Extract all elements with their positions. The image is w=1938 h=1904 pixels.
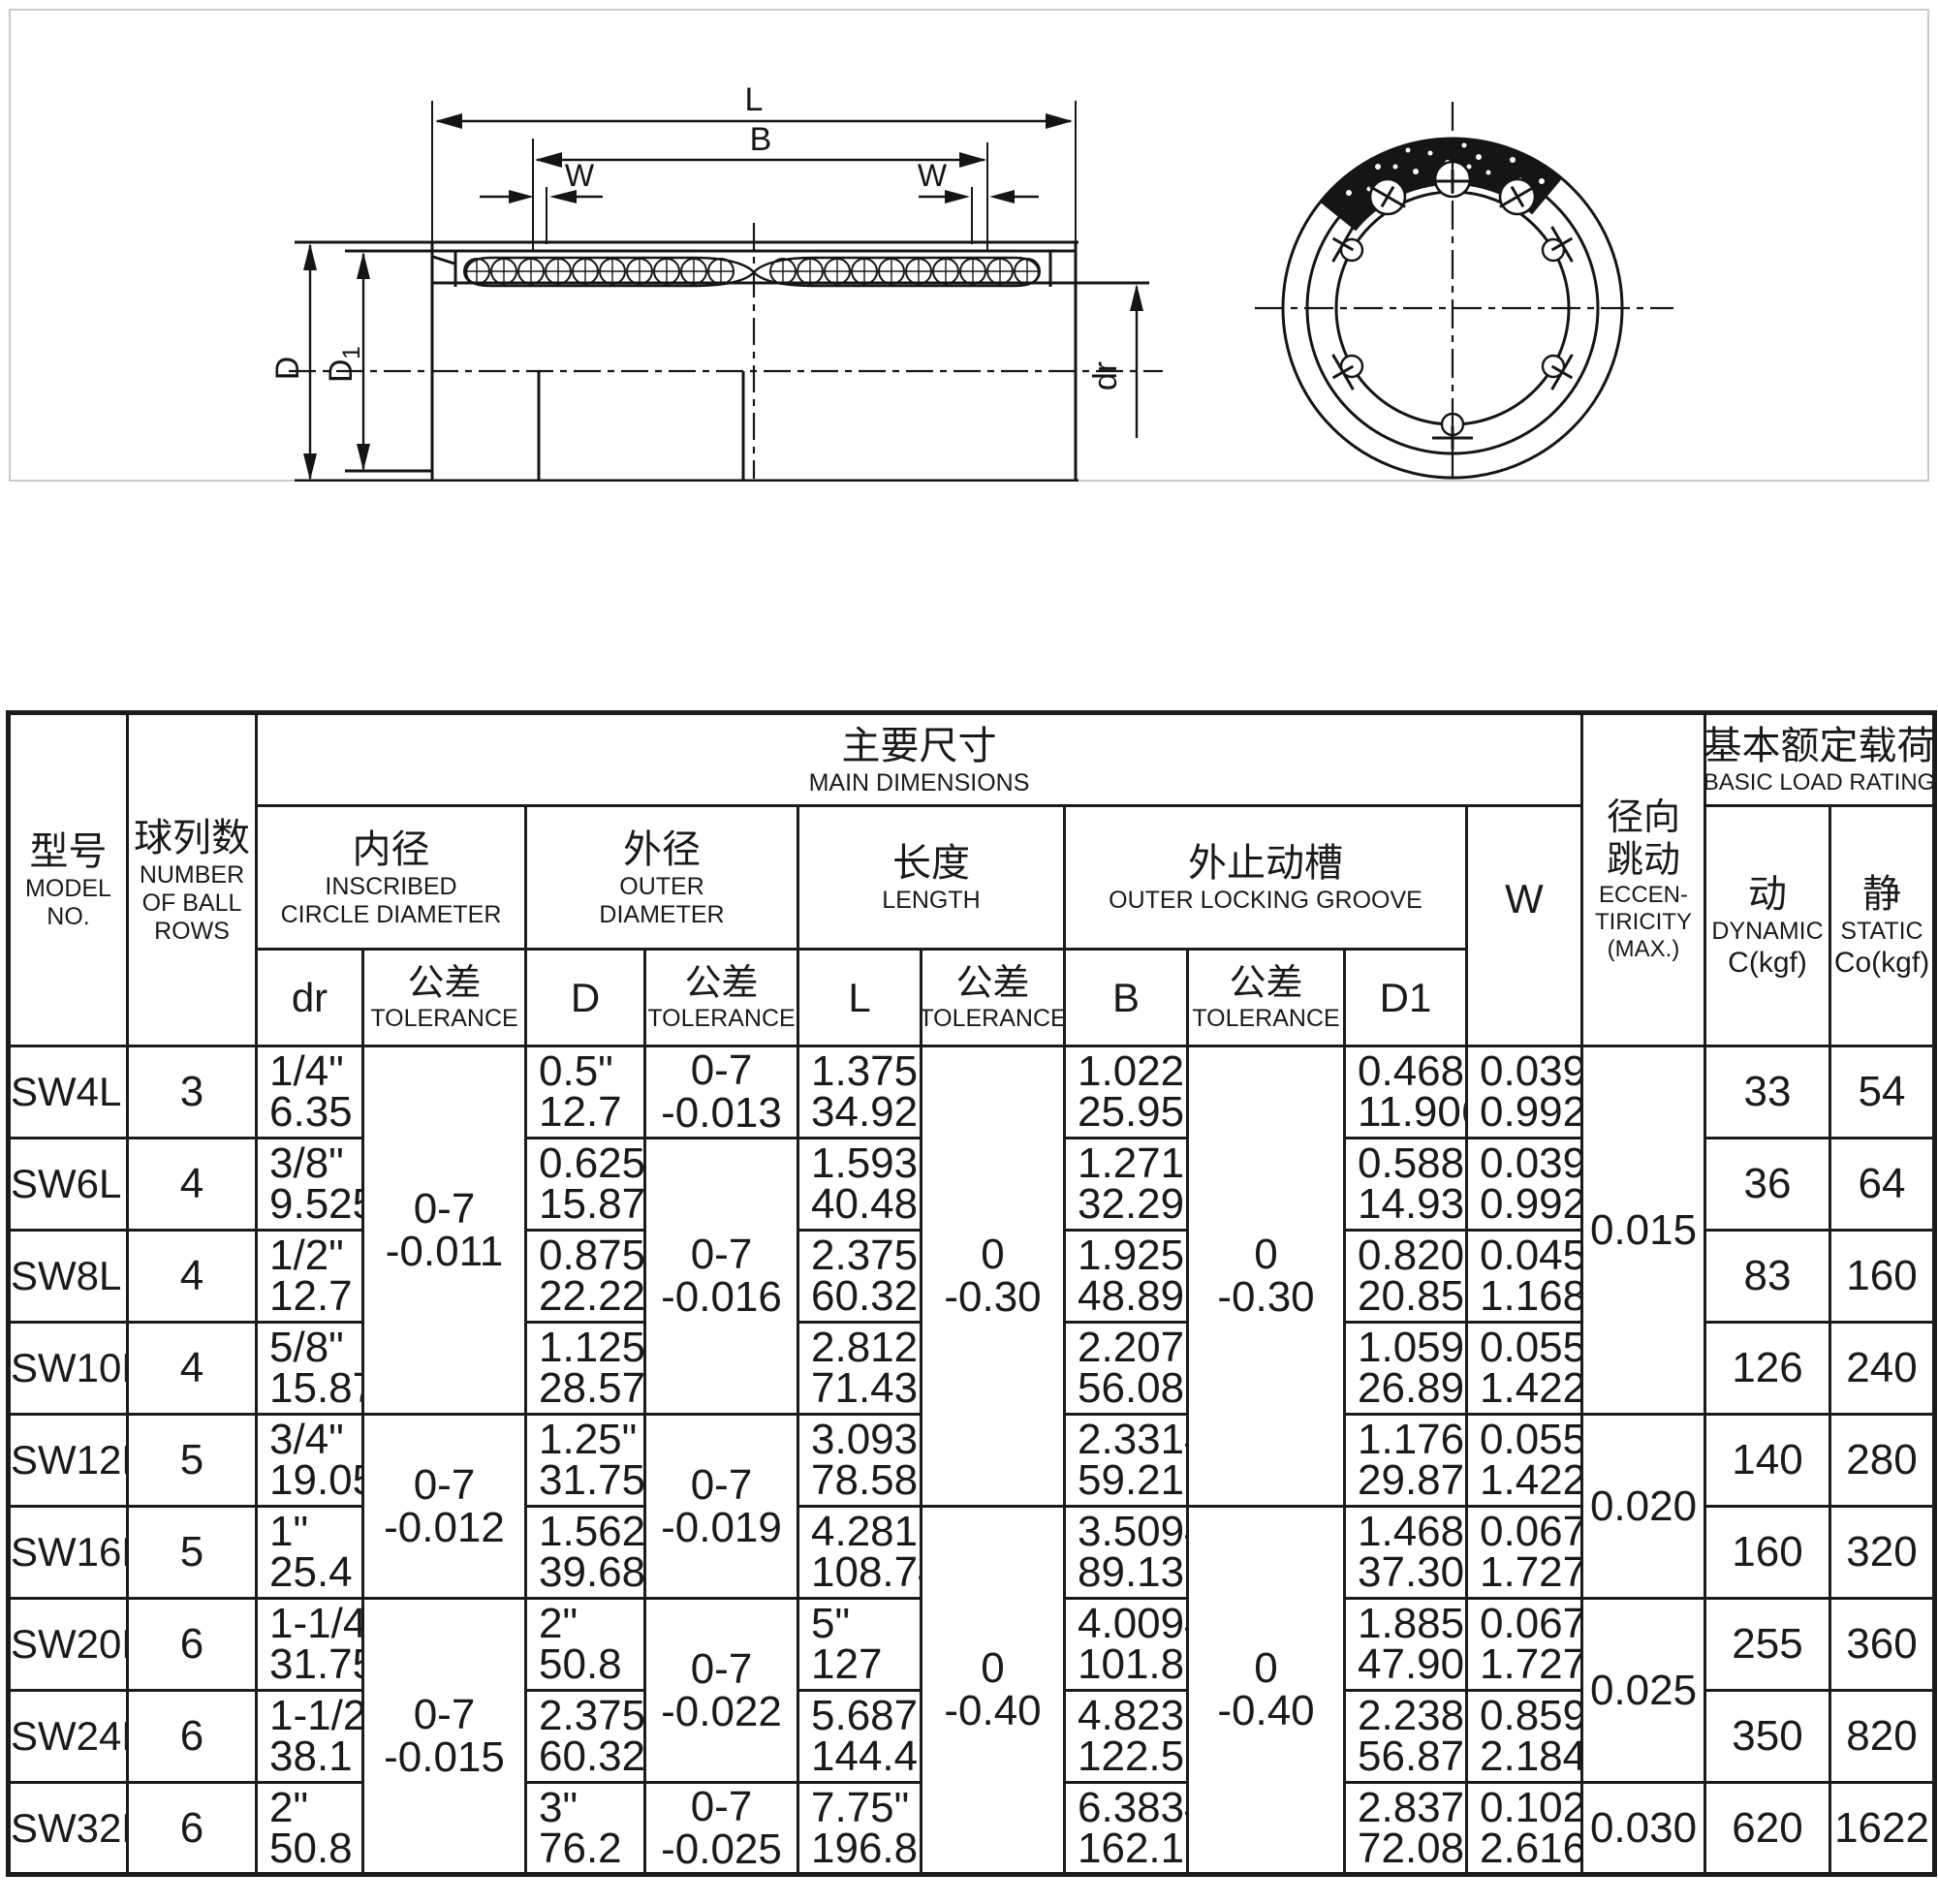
- cn-label: 长度: [892, 840, 970, 887]
- dim-label-D: D: [269, 357, 306, 381]
- l-cell: 4.2813"108.744: [798, 1507, 922, 1599]
- d-cell: 0.625"15.875: [526, 1139, 645, 1231]
- cn-label: 型号: [30, 828, 108, 875]
- header-outer-diameter: 外径 OUTER DIAMETER: [526, 806, 798, 950]
- en-label: MAIN DIMENSIONS: [809, 769, 1030, 797]
- w-cell: 0.039"0.992: [1467, 1139, 1582, 1231]
- dynamic-load-cell: 140: [1705, 1415, 1830, 1507]
- d1-cell: 1.059"26.899: [1345, 1323, 1467, 1415]
- w-symbol: W: [1505, 878, 1544, 921]
- header-d1: D1: [1345, 950, 1467, 1046]
- b-symbol: B: [1112, 977, 1140, 1019]
- static-load-cell: 240: [1830, 1323, 1935, 1415]
- en-label: MODEL: [25, 875, 111, 903]
- d-cell: 0.875"22.225: [526, 1231, 645, 1323]
- w-cell: 0.1029"2.616: [1467, 1783, 1582, 1875]
- ball-rows-cell: 4: [128, 1323, 257, 1415]
- d-tolerance-cell: 0-7-0.022: [645, 1599, 798, 1783]
- static-load-cell: 360: [1830, 1599, 1935, 1691]
- header-dr-tolerance: 公差 TOLERANCE: [363, 950, 526, 1046]
- en-label: TOLERANCE: [370, 1005, 517, 1033]
- l-tolerance-cell: 0-0.40: [922, 1507, 1065, 1875]
- b-cell: 1.925"48.895: [1065, 1231, 1188, 1323]
- en-label: STATIC: [1840, 918, 1922, 946]
- dynamic-load-cell: 36: [1705, 1139, 1830, 1231]
- d1-cell: 0.4687"11.906: [1345, 1046, 1467, 1139]
- header-locking-groove: 外止动槽 OUTER LOCKING GROOVE: [1065, 806, 1467, 950]
- l-cell: 5"127: [798, 1599, 922, 1691]
- dr-cell: 2"50.8: [257, 1783, 363, 1875]
- l-cell: 2.375"60.325: [798, 1231, 922, 1323]
- en-label: TIRICITY: [1595, 909, 1692, 936]
- header-model: 型号 MODEL NO.: [9, 713, 128, 1046]
- ball-rows-cell: 3: [128, 1046, 257, 1139]
- d-tolerance-cell: 0-7-0.013: [645, 1046, 798, 1139]
- header-l: L: [798, 950, 922, 1046]
- dr-cell: 5/8"15.875: [257, 1323, 363, 1415]
- d1-cell: 2.8379"72.085: [1345, 1783, 1467, 1875]
- cn-label: 公差: [955, 962, 1029, 1005]
- d-cell: 0.5"12.7: [526, 1046, 645, 1139]
- static-load-cell: 320: [1830, 1507, 1935, 1599]
- dim-label-L: L: [745, 81, 764, 118]
- cn-label: 动: [1748, 871, 1787, 918]
- cn-label: 球列数: [134, 815, 250, 861]
- w-cell: 0.0559"1.422: [1467, 1323, 1582, 1415]
- d1-cell: 0.588"14.935: [1345, 1139, 1467, 1231]
- cn-label: 主要尺寸: [842, 723, 997, 769]
- static-load-cell: 820: [1830, 1691, 1935, 1783]
- ball-rows-cell: 6: [128, 1599, 257, 1691]
- en-label: INSCRIBED: [325, 873, 456, 901]
- d-symbol: D: [571, 977, 600, 1019]
- l-cell: 5.6875"144.463: [798, 1691, 922, 1783]
- d1-cell: 1.4687"37.306: [1345, 1507, 1467, 1599]
- static-load-cell: 280: [1830, 1415, 1935, 1507]
- b-tolerance-cell: 0-0.40: [1188, 1507, 1345, 1875]
- l-cell: 1.5938"40.481: [798, 1139, 922, 1231]
- w-cell: 0.0459"1.168: [1467, 1231, 1582, 1323]
- ball-rows-cell: 4: [128, 1231, 257, 1323]
- dynamic-load-cell: 83: [1705, 1231, 1830, 1323]
- dim-label-dr: dr: [1087, 361, 1124, 390]
- table-row: SW4L 3 1/4"6.35 0-7-0.011 0.5"12.7 0-7-0…: [9, 1046, 1935, 1139]
- b-cell: 4.0094"101.839: [1065, 1599, 1188, 1691]
- d1-cell: 1.8859"47.904: [1345, 1599, 1467, 1691]
- static-load-cell: 54: [1830, 1046, 1935, 1139]
- dim-label-W-right: W: [918, 158, 948, 193]
- cn-label: 内径: [353, 827, 430, 873]
- ball-rows-cell: 5: [128, 1507, 257, 1599]
- w-cell: 0.859"2.184: [1467, 1691, 1582, 1783]
- dynamic-load-cell: 33: [1705, 1046, 1830, 1139]
- header-dr: dr: [257, 950, 363, 1046]
- model-cell: SW10L: [9, 1323, 128, 1415]
- ball-rows-cell: 4: [128, 1139, 257, 1231]
- d-cell: 1.5625"39.688: [526, 1507, 645, 1599]
- datasheet-page: { "drawing": { "labels": { "l":"L", "b":…: [0, 0, 1938, 1904]
- dr-cell: 3/4"19.05: [257, 1415, 363, 1507]
- d-cell: 1.125"28.575: [526, 1323, 645, 1415]
- dr-tolerance-cell: 0-7-0.011: [363, 1046, 526, 1415]
- en-label: DYNAMIC: [1711, 918, 1823, 946]
- dr-cell: 1/4"6.35: [257, 1046, 363, 1139]
- b-cell: 6.3834"162.138: [1065, 1783, 1188, 1875]
- l-symbol: L: [848, 977, 870, 1019]
- l-cell: 3.0937"78.581: [798, 1415, 922, 1507]
- en-label: NO.: [47, 903, 89, 931]
- technical-drawing: L B W W D: [8, 8, 1930, 482]
- header-main-dimensions: 主要尺寸 MAIN DIMENSIONS: [257, 713, 1582, 806]
- dynamic-load-cell: 126: [1705, 1323, 1830, 1415]
- l-tolerance-cell: 0-0.30: [922, 1046, 1065, 1507]
- ball-rows-cell: 5: [128, 1415, 257, 1507]
- eccentricity-cell: 0.020: [1582, 1415, 1705, 1599]
- d-tolerance-cell: 0-7-0.016: [645, 1139, 798, 1415]
- en-label: OUTER LOCKING GROOVE: [1109, 887, 1422, 915]
- d-tolerance-cell: 0-7-0.019: [645, 1415, 798, 1599]
- model-cell: SW24L: [9, 1691, 128, 1783]
- en-label: ECCEN-: [1599, 882, 1688, 909]
- d-cell: 2.375"60.325: [526, 1691, 645, 1783]
- dim-label-W-left: W: [565, 158, 595, 193]
- unit-label: Co(kgf): [1834, 946, 1929, 981]
- header-d-tolerance: 公差 TOLERANCE: [645, 950, 798, 1046]
- header-load-rating: 基本额定载荷 BASIC LOAD RATING: [1705, 713, 1935, 806]
- d1-cell: 0.8209"20.853: [1345, 1231, 1467, 1323]
- d-cell: 1.25"31.75: [526, 1415, 645, 1507]
- drawing-border: [10, 10, 1928, 481]
- header-inscribed-diameter: 内径 INSCRIBED CIRCLE DIAMETER: [257, 806, 526, 950]
- dim-label-B: B: [750, 121, 772, 158]
- dimension-table: 型号 MODEL NO. 球列数 NUMBER OF BALL ROWS 主要尺…: [6, 710, 1937, 1877]
- d1-symbol: D1: [1380, 977, 1432, 1019]
- cn-label: 外止动槽: [1188, 840, 1343, 887]
- dynamic-load-cell: 620: [1705, 1783, 1830, 1875]
- b-tolerance-cell: 0-0.30: [1188, 1046, 1345, 1507]
- b-cell: 2.3314"59.218: [1065, 1415, 1188, 1507]
- en-label: TOLERANCE: [647, 1005, 795, 1033]
- d-cell: 3"76.2: [526, 1783, 645, 1875]
- static-load-cell: 64: [1830, 1139, 1935, 1231]
- w-cell: 0.0559"1.422: [1467, 1415, 1582, 1507]
- en-label: OF BALL: [142, 890, 242, 918]
- w-cell: 0.0679"1.727: [1467, 1599, 1582, 1691]
- cn-label: 公差: [1229, 962, 1302, 1005]
- d-cell: 2"50.8: [526, 1599, 645, 1691]
- header-w: W: [1467, 806, 1582, 1046]
- header-l-tolerance: 公差 TOLERANCE: [922, 950, 1065, 1046]
- b-cell: 3.5094"89.139: [1065, 1507, 1188, 1599]
- b-cell: 1.2716"32.298: [1065, 1139, 1188, 1231]
- en-label: LENGTH: [882, 887, 980, 915]
- dr-cell: 3/8"9.525: [257, 1139, 363, 1231]
- header-eccentricity: 径向 跳动 ECCEN- TIRICITY (MAX.): [1582, 713, 1705, 1046]
- header-ball-rows: 球列数 NUMBER OF BALL ROWS: [128, 713, 257, 1046]
- w-cell: 0.0679"1.727: [1467, 1507, 1582, 1599]
- header-b-tolerance: 公差 TOLERANCE: [1188, 950, 1345, 1046]
- b-cell: 1.022"25.959: [1065, 1046, 1188, 1139]
- cn-label: 外径: [623, 827, 701, 873]
- cn-label: 跳动: [1607, 839, 1680, 882]
- en-label: NUMBER: [140, 861, 244, 890]
- dr-cell: 1"25.4: [257, 1507, 363, 1599]
- dynamic-load-cell: 255: [1705, 1599, 1830, 1691]
- ball-rows-cell: 6: [128, 1691, 257, 1783]
- dim-label-D1-sub: 1: [338, 346, 365, 359]
- en-label: ROWS: [154, 918, 230, 946]
- header-static-load: 静 STATIC Co(kgf): [1830, 806, 1935, 1046]
- en-label: BASIC LOAD RATING: [1705, 769, 1935, 796]
- b-cell: 2.2079"56.08: [1065, 1323, 1188, 1415]
- header-length: 长度 LENGTH: [798, 806, 1065, 950]
- unit-label: C(kgf): [1728, 946, 1807, 981]
- model-cell: SW8L: [9, 1231, 128, 1323]
- model-cell: SW20L: [9, 1599, 128, 1691]
- en-label: TOLERANCE: [1192, 1005, 1339, 1033]
- dr-tolerance-cell: 0-7-0.015: [363, 1599, 526, 1875]
- dr-cell: 1/2"12.7: [257, 1231, 363, 1323]
- header-d: D: [526, 950, 645, 1046]
- cn-label: 公差: [407, 962, 481, 1005]
- d1-cell: 2.2389"56.87: [1345, 1691, 1467, 1783]
- dynamic-load-cell: 160: [1705, 1507, 1830, 1599]
- l-cell: 1.375"34.925: [798, 1046, 922, 1139]
- ball-rows-cell: 6: [128, 1783, 257, 1875]
- b-cell: 4.8236"122.519: [1065, 1691, 1188, 1783]
- dr-tolerance-cell: 0-7-0.012: [363, 1415, 526, 1599]
- en-label: (MAX.): [1608, 936, 1680, 963]
- header-dynamic-load: 动 DYNAMIC C(kgf): [1705, 806, 1830, 1046]
- dr-cell: 1-1/2"38.1: [257, 1691, 363, 1783]
- w-cell: 0.039"0.992: [1467, 1046, 1582, 1139]
- dr-symbol: dr: [292, 977, 328, 1019]
- l-cell: 2.8125"71.438: [798, 1323, 922, 1415]
- static-load-cell: 1622: [1830, 1783, 1935, 1875]
- d-tolerance-cell: 0-7-0.025: [645, 1783, 798, 1875]
- static-load-cell: 160: [1830, 1231, 1935, 1323]
- eccentricity-cell: 0.030: [1582, 1783, 1705, 1875]
- en-label: CIRCLE DIAMETER: [281, 901, 502, 929]
- l-cell: 7.75"196.85: [798, 1783, 922, 1875]
- en-label: DIAMETER: [599, 901, 724, 929]
- cn-label: 公差: [684, 962, 758, 1005]
- model-cell: SW6L: [9, 1139, 128, 1231]
- dynamic-load-cell: 350: [1705, 1691, 1830, 1783]
- model-cell: SW32L: [9, 1783, 128, 1875]
- eccentricity-cell: 0.015: [1582, 1046, 1705, 1415]
- dr-cell: 1-1/4"31.75: [257, 1599, 363, 1691]
- cn-label: 基本额定载荷: [1705, 723, 1935, 769]
- cn-label: 径向: [1607, 796, 1680, 839]
- cn-label: 静: [1862, 871, 1901, 918]
- en-label: OUTER: [619, 873, 704, 901]
- header-b: B: [1065, 950, 1188, 1046]
- dim-label-D1: D: [323, 359, 359, 383]
- model-cell: SW4L: [9, 1046, 128, 1139]
- en-label: TOLERANCE: [922, 1005, 1065, 1033]
- model-cell: SW16L: [9, 1507, 128, 1599]
- model-cell: SW12L: [9, 1415, 128, 1507]
- eccentricity-cell: 0.025: [1582, 1599, 1705, 1783]
- d1-cell: 1.176"29.87: [1345, 1415, 1467, 1507]
